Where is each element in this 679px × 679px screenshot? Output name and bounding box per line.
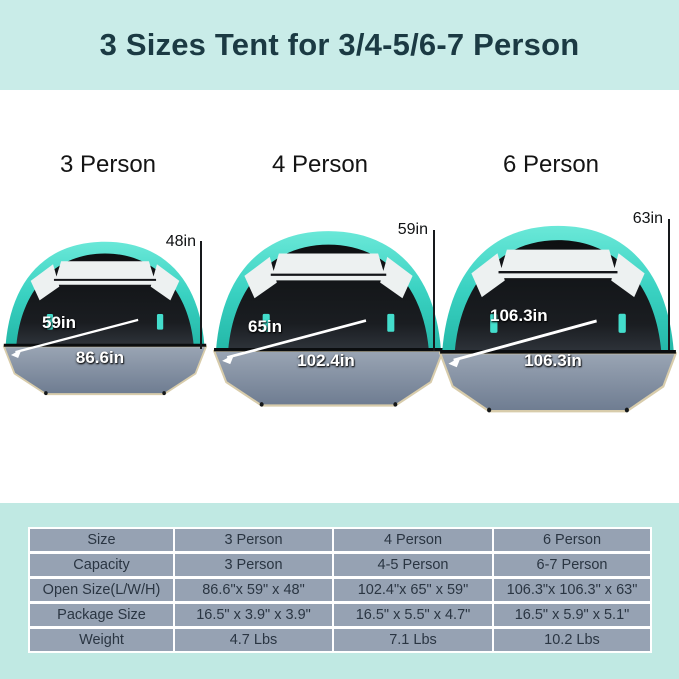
height-label-6-person: 63in [617, 210, 663, 228]
spec-cell: 16.5" x 3.9" x 3.9" [175, 604, 332, 626]
spec-table: Size 3 Person 4 Person 6 Person Capacity… [28, 527, 652, 653]
spec-cell: 3 Person [175, 529, 332, 551]
spec-row-label: Open Size(L/W/H) [30, 579, 173, 601]
product-infographic: 3 Sizes Tent for 3/4-5/6-7 Person 3 Pers… [0, 0, 679, 679]
depth-label-6-person: 106.3in [490, 306, 548, 326]
spec-cell: 10.2 Lbs [494, 629, 650, 651]
height-label-4-person: 59in [382, 221, 428, 239]
spec-cell: 102.4"x 65" x 59" [334, 579, 492, 601]
spec-cell: 4 Person [334, 529, 492, 551]
page-title: 3 Sizes Tent for 3/4-5/6-7 Person [100, 27, 580, 63]
height-dimension-line-6-person [668, 219, 670, 350]
spec-cell: 6-7 Person [494, 554, 650, 576]
height-dimension-line-4-person [433, 230, 435, 351]
spec-row-label: Size [30, 529, 173, 551]
width-label-3-person: 86.6in [76, 348, 124, 368]
width-label-4-person: 102.4in [297, 351, 355, 371]
spec-row-label: Package Size [30, 604, 173, 626]
tent-illustration-3-person [2, 232, 208, 398]
tent-illustration-4-person [212, 220, 445, 410]
tent-title-4-person: 4 Person [272, 151, 368, 179]
spec-cell: 4.7 Lbs [175, 629, 332, 651]
header-banner: 3 Sizes Tent for 3/4-5/6-7 Person [0, 0, 679, 90]
tent-title-3-person: 3 Person [60, 151, 156, 179]
width-label-6-person: 106.3in [524, 351, 582, 371]
height-label-3-person: 48in [150, 233, 196, 251]
spec-cell: 7.1 Lbs [334, 629, 492, 651]
tent-title-6-person: 6 Person [503, 151, 599, 179]
depth-label-4-person: 65in [248, 317, 282, 337]
spec-cell: 3 Person [175, 554, 332, 576]
depth-label-3-person: 59in [42, 313, 76, 333]
spec-cell: 16.5" x 5.5" x 4.7" [334, 604, 492, 626]
spec-cell: 106.3"x 106.3" x 63" [494, 579, 650, 601]
height-dimension-line-3-person [200, 241, 202, 349]
spec-cell: 4-5 Person [334, 554, 492, 576]
spec-row-label: Weight [30, 629, 173, 651]
spec-row-label: Capacity [30, 554, 173, 576]
tent-illustration-6-person [438, 214, 678, 416]
spec-cell: 86.6"x 59" x 48" [175, 579, 332, 601]
spec-cell: 16.5" x 5.9" x 5.1" [494, 604, 650, 626]
spec-cell: 6 Person [494, 529, 650, 551]
